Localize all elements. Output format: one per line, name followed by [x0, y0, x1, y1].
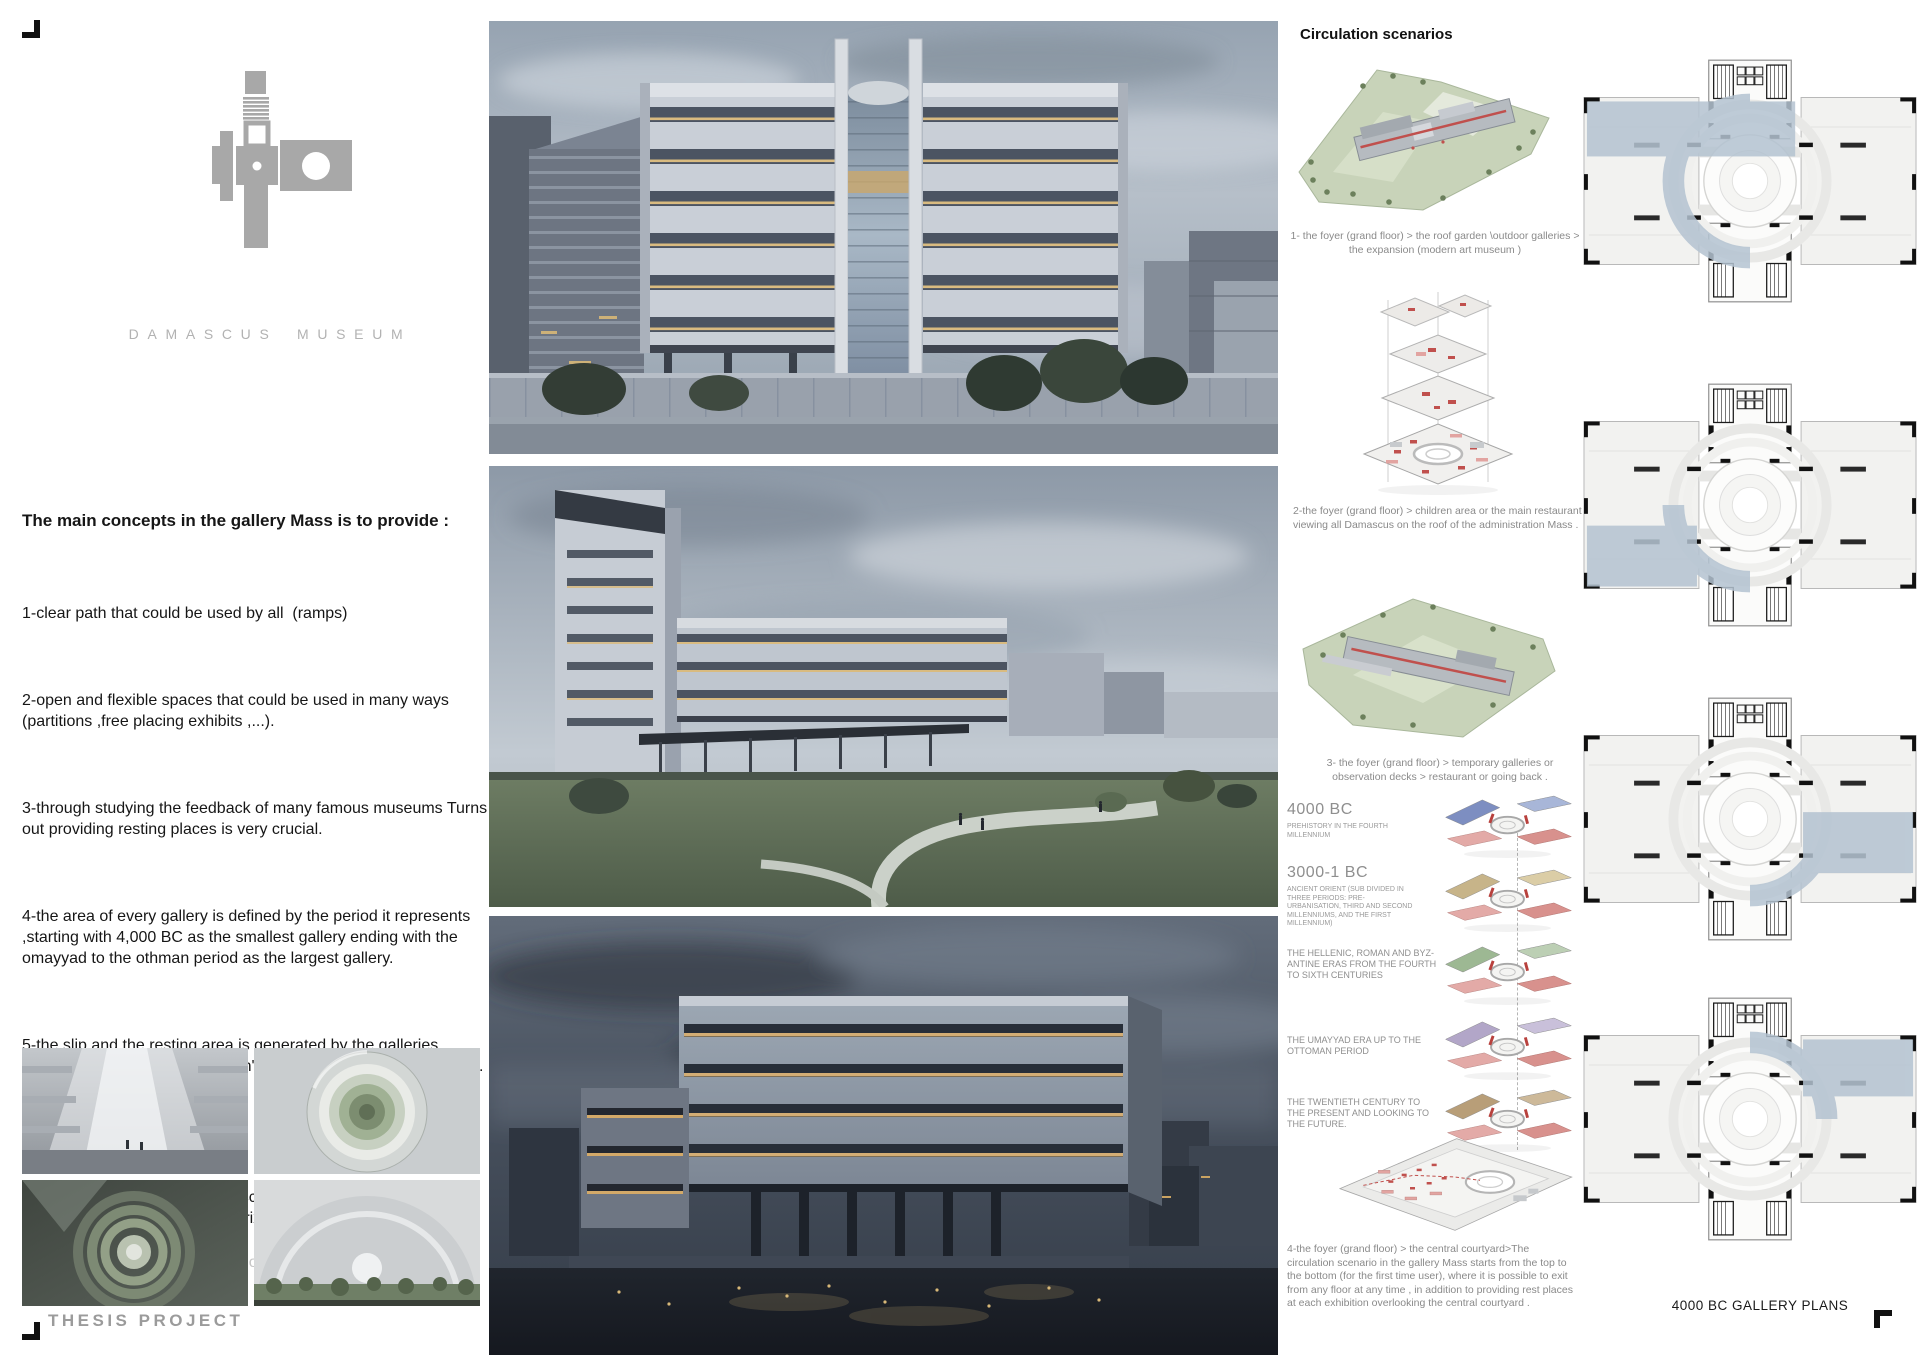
presentation-board: DAMASCUS MUSEUM The main concepts in the… [0, 0, 1920, 1358]
floor-plan-4 [1583, 994, 1917, 1244]
circulation-axon-2 [1330, 282, 1545, 500]
concept-item-1: 1-clear path that could be used by all (… [22, 603, 492, 624]
interior-circular-atrium-image [254, 1048, 480, 1174]
concept-item-2: 2-open and flexible spaces that could be… [22, 690, 492, 732]
render-lawn-perspective-image [489, 466, 1278, 907]
circulation-caption-2: 2-the foyer (grand floor) > children are… [1293, 505, 1593, 532]
gallery-mass-axon [1330, 1122, 1580, 1242]
gallery-axon-umayyad [1432, 1010, 1582, 1088]
concept-item-4: 4-the area of every gallery is defined b… [22, 906, 492, 969]
concept-item-3: 3-through studying the feedback of many … [22, 798, 492, 840]
timeline-desc-3000bc: ANCIENT ORIENT (SUB DIVIDED IN THREE PER… [1287, 886, 1415, 929]
gallery-axon-hellenic [1432, 935, 1582, 1013]
gallery-axon-3000bc [1432, 862, 1582, 940]
floor-plan-2 [1583, 380, 1917, 630]
render-front-elevation-image [489, 21, 1278, 454]
timeline-desc-hellenic: THE HELLENIC, ROMAN AND BYZ-ANTINE ERAS … [1287, 948, 1445, 981]
interior-dome-image [254, 1180, 480, 1306]
interior-atrium-skylight-image [22, 1048, 248, 1174]
timeline-title-3000bc: 3000-1 BC [1287, 864, 1368, 882]
interior-thumbnails [22, 1048, 480, 1306]
gallery-axon-4000bc [1432, 788, 1582, 866]
timeline-desc-4000bc: PREHISTORY IN THE FOURTH MILLENNIUM [1287, 823, 1407, 840]
circulation-axon-1 [1293, 52, 1565, 227]
museum-logo [212, 70, 352, 250]
timeline-title-4000bc: 4000 BC [1287, 801, 1353, 819]
brand-title: DAMASCUS MUSEUM [110, 326, 430, 342]
circulation-caption-4: 4-the foyer (grand floor) > the central … [1287, 1243, 1579, 1311]
timeline-desc-umayyad: THE UMAYYAD ERA UP TO THE OTTOMAN PERIOD [1287, 1035, 1437, 1057]
interior-spiral-ramp-image [22, 1180, 248, 1306]
circulation-axon-3 [1293, 585, 1565, 753]
floor-plan-3 [1583, 694, 1917, 944]
corner-mark-bottom-left [22, 1322, 40, 1340]
circulation-heading: Circulation scenarios [1300, 26, 1453, 43]
plans-caption: 4000 BC GALLERY PLANS [1640, 1298, 1880, 1313]
thesis-project-label: THESIS PROJECT [48, 1311, 243, 1331]
corner-mark-top-left [22, 20, 40, 38]
circulation-caption-3: 3- the foyer (grand floor) > temporary g… [1300, 757, 1580, 784]
concepts-heading: The main concepts in the gallery Mass is… [22, 510, 492, 531]
circulation-caption-1: 1- the foyer (grand floor) > the roof ga… [1290, 230, 1580, 257]
render-dusk-cantilever-image [489, 916, 1278, 1355]
floor-plan-1 [1583, 56, 1917, 306]
